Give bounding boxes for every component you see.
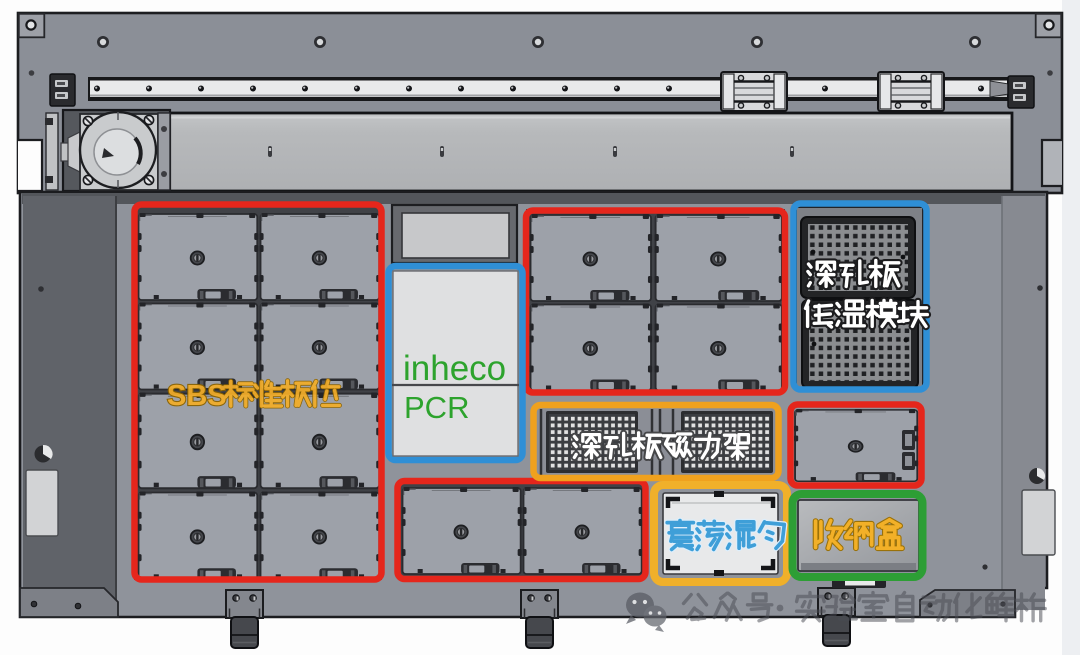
- svg-text:inheco: inheco: [403, 349, 506, 388]
- svg-text:SBS: SBS: [167, 380, 227, 412]
- svg-text:PCR: PCR: [404, 390, 469, 425]
